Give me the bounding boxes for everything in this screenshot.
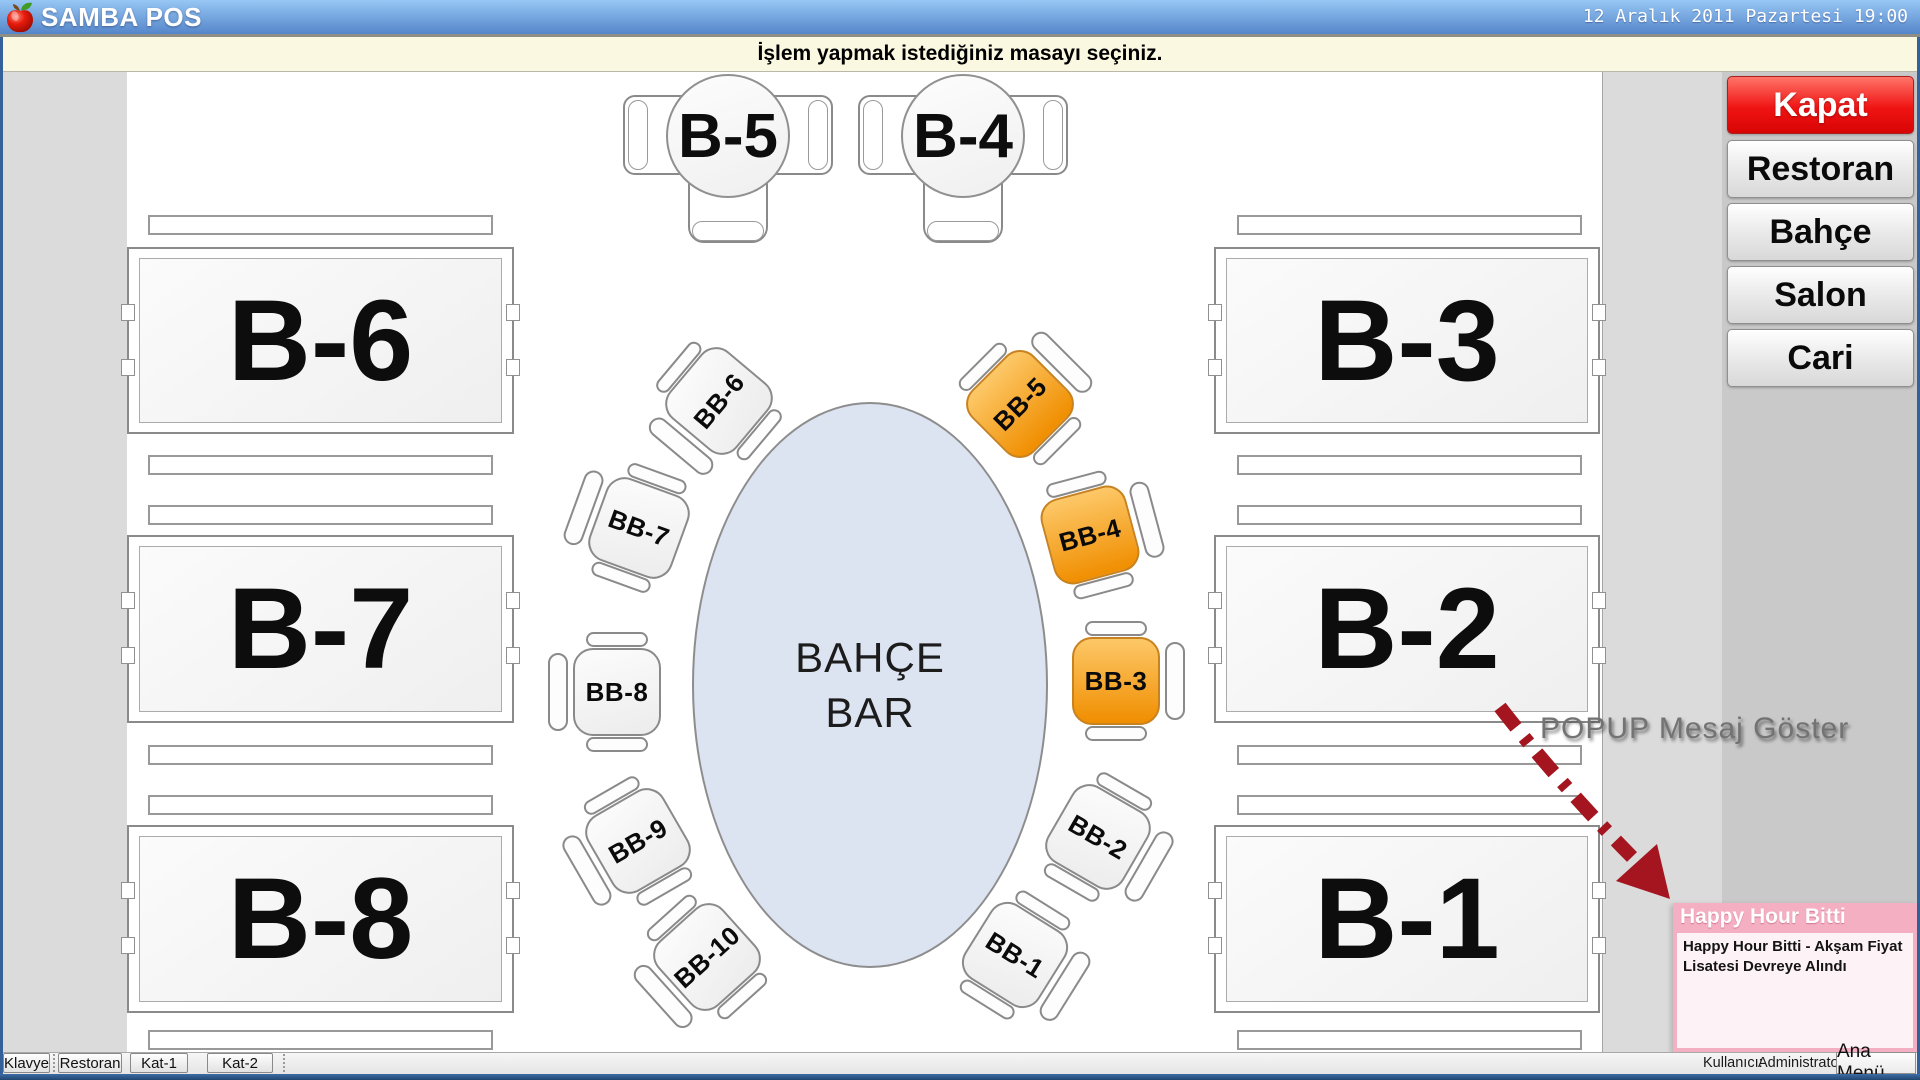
- chair-notch: [1592, 937, 1606, 954]
- chair-notch: [1592, 647, 1606, 664]
- bench: [148, 1030, 493, 1050]
- section-button-salon[interactable]: Salon: [1727, 266, 1914, 324]
- stool-label: BB-10: [668, 920, 746, 995]
- table-b4[interactable]: B-4: [901, 74, 1025, 198]
- chair-notch: [506, 937, 520, 954]
- section-button-bahce[interactable]: Bahçe: [1727, 203, 1914, 261]
- section-button-cari[interactable]: Cari: [1727, 329, 1914, 387]
- table-b8[interactable]: B-8: [127, 825, 514, 1013]
- chair-notch: [121, 882, 135, 899]
- table-label: B-5: [678, 101, 778, 172]
- stool-bb3[interactable]: BB-3: [1041, 606, 1191, 756]
- table-b3[interactable]: B-3: [1214, 247, 1600, 434]
- ana-menu-button[interactable]: Ana Menü: [1836, 1052, 1916, 1074]
- chair-notch: [121, 937, 135, 954]
- stool-arm: [586, 632, 648, 647]
- user-label: Kullanıcı:: [1703, 1052, 1763, 1074]
- chair-notch: [1592, 359, 1606, 376]
- chair-notch: [506, 304, 520, 321]
- bench: [148, 215, 493, 235]
- section-button-restoran[interactable]: Restoran: [1727, 140, 1914, 198]
- kapat-button[interactable]: Kapat: [1727, 76, 1914, 134]
- chair-notch: [506, 882, 520, 899]
- annotation-arrow-icon: [1480, 692, 1700, 917]
- chair-notch: [506, 647, 520, 664]
- stool-label: BB-6: [687, 367, 751, 435]
- bench: [148, 505, 493, 525]
- stool-label: BB-2: [1063, 808, 1133, 866]
- stool-arm: [1085, 621, 1147, 636]
- user-name: Administrator: [1758, 1052, 1843, 1074]
- restoran-button[interactable]: Restoran: [58, 1053, 122, 1073]
- table-label: B-2: [1314, 563, 1499, 695]
- stool-back: [548, 653, 568, 731]
- stool-arm: [586, 737, 648, 752]
- chair-notch: [121, 359, 135, 376]
- apple-logo-icon: [5, 2, 35, 34]
- window-bottom-border: [0, 1074, 1920, 1080]
- toolbar-separator: [283, 1054, 285, 1072]
- chair-notch: [1208, 304, 1222, 321]
- toolbar-separator: [53, 1054, 55, 1072]
- stool-label: BB-3: [1085, 666, 1148, 697]
- chair-notch: [121, 592, 135, 609]
- stool-arm: [1085, 726, 1147, 741]
- table-b7[interactable]: B-7: [127, 535, 514, 723]
- table-b6[interactable]: B-6: [127, 247, 514, 434]
- table-b5[interactable]: B-5: [666, 74, 790, 198]
- table-label: B-8: [228, 853, 413, 985]
- chair-notch: [1208, 937, 1222, 954]
- stool-label: BB-8: [586, 677, 649, 708]
- notification-bar: İşlem yapmak istediğiniz masayı seçiniz.: [3, 37, 1917, 72]
- table-label: B-6: [228, 275, 413, 407]
- bench: [1237, 505, 1582, 525]
- bench: [148, 795, 493, 815]
- popup-title: Happy Hour Bitti: [1673, 903, 1917, 933]
- table-label: B-7: [228, 563, 413, 695]
- stool-label: BB-7: [604, 503, 673, 554]
- bench: [148, 455, 493, 475]
- popup-message: Happy Hour Bitti - Akşam Fiyat Lisatesi …: [1677, 933, 1913, 1048]
- bar-label-line2: BAR: [825, 685, 914, 740]
- chair-notch: [1208, 592, 1222, 609]
- datetime-display: 12 Aralık 2011 Pazartesi 19:00: [1583, 6, 1908, 27]
- chair-notch: [506, 592, 520, 609]
- chair-notch: [121, 647, 135, 664]
- bar-label-line1: BAHÇE: [795, 630, 945, 685]
- chair-notch: [1592, 592, 1606, 609]
- bench: [1237, 1030, 1582, 1050]
- chair-notch: [121, 304, 135, 321]
- klavye-button[interactable]: Klavye: [3, 1053, 50, 1073]
- table-label: B-3: [1314, 275, 1499, 407]
- stool-label: BB-1: [980, 925, 1050, 985]
- left-margin: [3, 72, 127, 1052]
- chair-notch: [1208, 882, 1222, 899]
- stool-label: BB-5: [987, 371, 1053, 437]
- popup-notification[interactable]: Happy Hour Bitti Happy Hour Bitti - Akşa…: [1673, 903, 1917, 1052]
- bench: [1237, 215, 1582, 235]
- chair-notch: [1208, 647, 1222, 664]
- stool-label: BB-9: [603, 812, 673, 870]
- notification-message: İşlem yapmak istediğiniz masayı seçiniz.: [757, 42, 1162, 66]
- stool-bb8[interactable]: BB-8: [542, 617, 692, 767]
- chair-notch: [506, 359, 520, 376]
- table-label: B-4: [913, 101, 1013, 172]
- app-title: SAMBA POS: [41, 2, 202, 33]
- table-label: B-1: [1314, 853, 1499, 985]
- kat2-button[interactable]: Kat-2: [207, 1053, 273, 1073]
- bottom-toolbar: [3, 1052, 1917, 1074]
- stool-back: [1165, 642, 1185, 720]
- bench: [1237, 455, 1582, 475]
- chair-notch: [1208, 359, 1222, 376]
- stool-label: BB-4: [1056, 512, 1125, 558]
- title-bar: SAMBA POS 12 Aralık 2011 Pazartesi 19:00: [0, 0, 1920, 34]
- kat1-button[interactable]: Kat-1: [130, 1053, 188, 1073]
- bench: [148, 745, 493, 765]
- chair-notch: [1592, 304, 1606, 321]
